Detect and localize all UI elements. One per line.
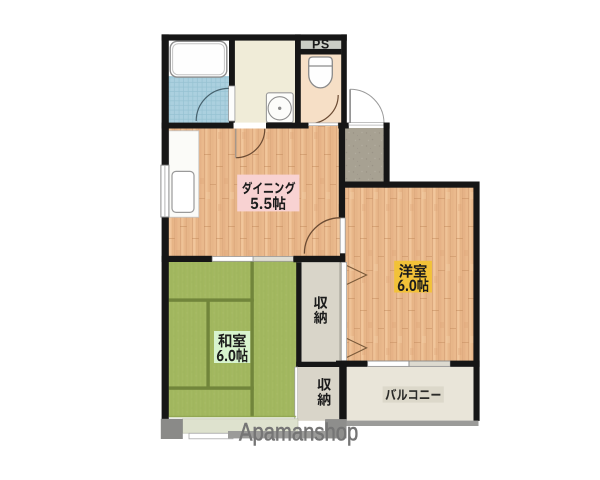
svg-text:Apamanshop: Apamanshop bbox=[239, 417, 358, 446]
